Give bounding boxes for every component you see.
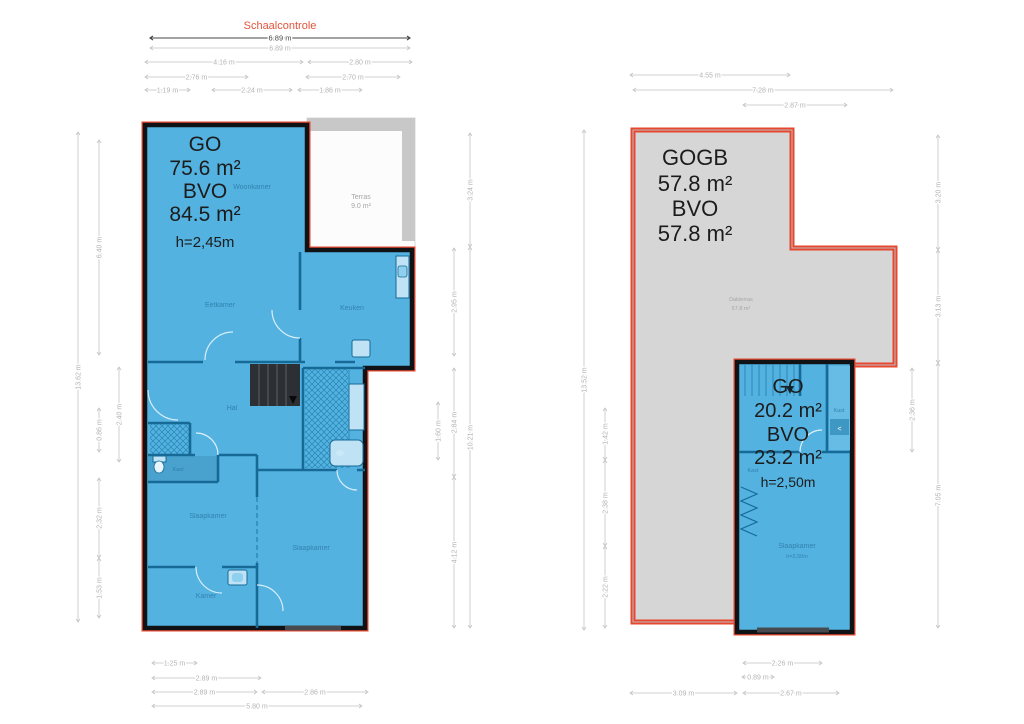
right-plan: < GOGB 57.8 m² BVO 57.8 m² Dakterras 57.… [581, 72, 942, 697]
dimension-horizontal: 2.67 m [743, 690, 839, 697]
right-bvo-label: BVO [767, 424, 809, 446]
dimension-vertical: 1.60 m [435, 402, 442, 460]
dimension-horizontal: 2.24 m [212, 87, 292, 94]
dimension-label: 4.55 m [699, 72, 721, 79]
staircase [250, 364, 300, 406]
dimension-label: 6.40 m [96, 237, 103, 259]
dimension-label: 2.67 m [780, 690, 802, 697]
dimension-vertical: 2.38 m [602, 460, 609, 546]
dimension-horizontal: 3.09 m [630, 690, 737, 697]
dimension-vertical: 10.21 m [467, 247, 474, 628]
dimension-horizontal: 5.80 m [152, 703, 362, 710]
dimension-vertical: 0.86 m [96, 408, 103, 452]
dimension-vertical: 2.95 m [451, 248, 458, 356]
kitchen-appliance [352, 340, 370, 357]
dimension-horizontal: 2.86 m [262, 689, 368, 696]
dimension-label: 2.76 m [186, 74, 208, 81]
dimension-horizontal: 2.26 m [743, 660, 822, 667]
dimension-label: 1.53 m [96, 577, 103, 599]
dimension-label: 2.22 m [602, 576, 609, 598]
dimension-label: 4.16 m [213, 59, 235, 66]
dimension-label: 3.24 m [467, 179, 474, 201]
room-label-terras: Terras [351, 194, 371, 201]
dimension-vertical: 2.36 m [909, 368, 916, 452]
dimension-label: 13.52 m [581, 367, 588, 392]
dimension-label: 2.38 m [602, 492, 609, 514]
dimension-horizontal: 2.87 m [743, 102, 847, 109]
floorplan-page: Schaalcontrole GO 75.6 m² BVO 84.5 m² h=… [0, 0, 1024, 724]
room-label-slaapkamer: Slaapkamer [778, 543, 816, 550]
right-gogb-area: 57.8 m² [658, 171, 733, 196]
room-label-slaapkamer-left: Slaapkamer [189, 513, 227, 520]
wc-tiles [150, 424, 189, 454]
dimension-label: 0.86 m [96, 419, 103, 441]
left-go-label: GO [189, 133, 222, 156]
dimension-horizontal: 6.89 m [150, 45, 410, 52]
room-label-woonkamer: Woonkamer [233, 184, 271, 191]
dimension-label: 7.05 m [935, 485, 942, 507]
window-bottom [285, 626, 341, 631]
room-label-dakterras: Dakterras [729, 297, 753, 303]
dimension-vertical: 3.13 m [935, 250, 942, 363]
terrace-area [307, 118, 415, 252]
dimension-label: 2.32 m [96, 507, 103, 529]
right-roof-bvo-area: 57.8 m² [658, 221, 733, 246]
dimension-horizontal: 6.89 m [150, 33, 410, 42]
shelf-icon: < [837, 426, 841, 433]
dimension-label: 0.89 m [747, 674, 769, 681]
dimension-horizontal: 4.16 m [145, 59, 303, 66]
terrace-floor [307, 118, 415, 252]
dimension-label: 2.70 m [342, 74, 364, 81]
dimension-vertical: 4.12 m [451, 477, 458, 628]
dimension-vertical: 1.42 m [602, 408, 609, 460]
dimension-vertical: 3.24 m [467, 133, 474, 247]
right-go-area: 20.2 m² [754, 400, 822, 422]
washbasin-bowl [232, 573, 243, 582]
room-label-kamer: Kamer [196, 593, 217, 600]
room-area-dakterras: 57.8 m² [732, 306, 751, 312]
dimension-vertical: 3.20 m [935, 135, 942, 250]
room-label-hal: Hal [227, 405, 238, 412]
floor-plan-drawing: Schaalcontrole GO 75.6 m² BVO 84.5 m² h=… [0, 0, 1024, 724]
dimension-vertical: 13.62 m [75, 132, 82, 622]
left-go-area: 75.6 m² [169, 157, 240, 180]
dimension-label: 6.89 m [269, 33, 292, 42]
dimension-label: 1.19 m [157, 87, 179, 94]
kitchen-sink [398, 266, 407, 277]
dimension-label: 7.28 m [752, 87, 774, 94]
dimension-label: 1.60 m [435, 420, 442, 442]
dimension-label: 13.62 m [75, 364, 82, 389]
dimension-label: 4.12 m [451, 542, 458, 564]
dimension-horizontal: 2.89 m [152, 675, 261, 682]
terrace-edge-top [307, 118, 415, 131]
dimension-label: 10.21 m [467, 425, 474, 450]
dimension-vertical: 2.22 m [602, 546, 609, 628]
dimension-vertical: 7.05 m [935, 363, 942, 628]
room-label-eetkamer: Eetkamer [205, 302, 236, 309]
dimension-label: 5.80 m [246, 703, 268, 710]
room-label-keuken: Keuken [340, 305, 364, 312]
left-ceiling-height: h=2,45m [176, 234, 235, 251]
dimension-label: 3.09 m [673, 690, 695, 697]
left-plan: Schaalcontrole GO 75.6 m² BVO 84.5 m² h=… [75, 20, 474, 710]
shower-column [349, 384, 364, 430]
dimension-vertical: 13.52 m [581, 130, 588, 630]
dimension-horizontal: 7.28 m [633, 87, 893, 94]
dimension-horizontal: 1.86 m [298, 87, 362, 94]
right-roof-bvo-label: BVO [672, 196, 718, 221]
dimension-label: 6.89 m [269, 45, 291, 52]
dimension-label: 2.40 m [116, 404, 123, 426]
dimension-label: 2.84 m [451, 412, 458, 434]
dimension-label: 3.20 m [935, 182, 942, 204]
dimension-label: 2.26 m [772, 660, 794, 667]
dimension-label: 2.80 m [349, 59, 371, 66]
scale-control-title: Schaalcontrole [244, 20, 317, 32]
room-label-kast-right: Kast [833, 408, 844, 414]
dimension-label: 2.86 m [304, 689, 326, 696]
room-label-slaapkamer-right: Slaapkamer [292, 545, 330, 552]
right-gogb-label: GOGB [662, 145, 728, 170]
toilet-bowl [154, 461, 164, 473]
window-bottom-right [757, 628, 829, 633]
dimension-label: 2.36 m [909, 399, 916, 421]
bathtub-drain [336, 450, 344, 456]
room-area-terras: 9.0 m² [351, 203, 372, 210]
dimension-horizontal: 2.76 m [145, 74, 248, 81]
dimension-vertical: 2.84 m [451, 368, 458, 477]
dimension-horizontal: 4.55 m [630, 72, 790, 79]
dimension-vertical: 1.53 m [96, 558, 103, 618]
dimension-horizontal: 2.89 m [152, 689, 257, 696]
left-bvo-area: 84.5 m² [169, 203, 240, 226]
right-go-label: GO [772, 376, 803, 398]
right-bvo-area: 23.2 m² [754, 447, 822, 469]
dimension-horizontal: 2.80 m [308, 59, 412, 66]
dimension-label: 1.86 m [319, 87, 341, 94]
dimension-label: 1.25 m [164, 660, 186, 667]
dimension-vertical: 6.40 m [96, 140, 103, 355]
dimension-label: 2.89 m [194, 689, 216, 696]
dimension-label: 3.13 m [935, 296, 942, 318]
dimension-horizontal: 0.89 m [742, 674, 774, 681]
dimension-horizontal: 1.25 m [152, 660, 197, 667]
left-bvo-label: BVO [183, 180, 227, 203]
right-ceiling-height: h=2,50m [761, 474, 816, 490]
terrace-edge-right [402, 118, 415, 241]
dimension-horizontal: 2.70 m [306, 74, 400, 81]
dimension-label: 2.24 m [241, 87, 263, 94]
room-height-slaapkamer: h=2,50m [786, 554, 808, 560]
dimension-vertical: 2.32 m [96, 478, 103, 558]
dimension-horizontal: 1.19 m [145, 87, 190, 94]
room-label-kast: Kast [172, 467, 183, 473]
dimension-label: 1.42 m [602, 423, 609, 445]
dimension-vertical: 2.40 m [116, 367, 123, 462]
bathtub [330, 440, 363, 466]
dimension-label: 2.89 m [196, 675, 218, 682]
dimension-label: 2.95 m [451, 291, 458, 313]
dimension-label: 2.87 m [784, 102, 806, 109]
room-label-kast-left: Kast [747, 468, 758, 474]
